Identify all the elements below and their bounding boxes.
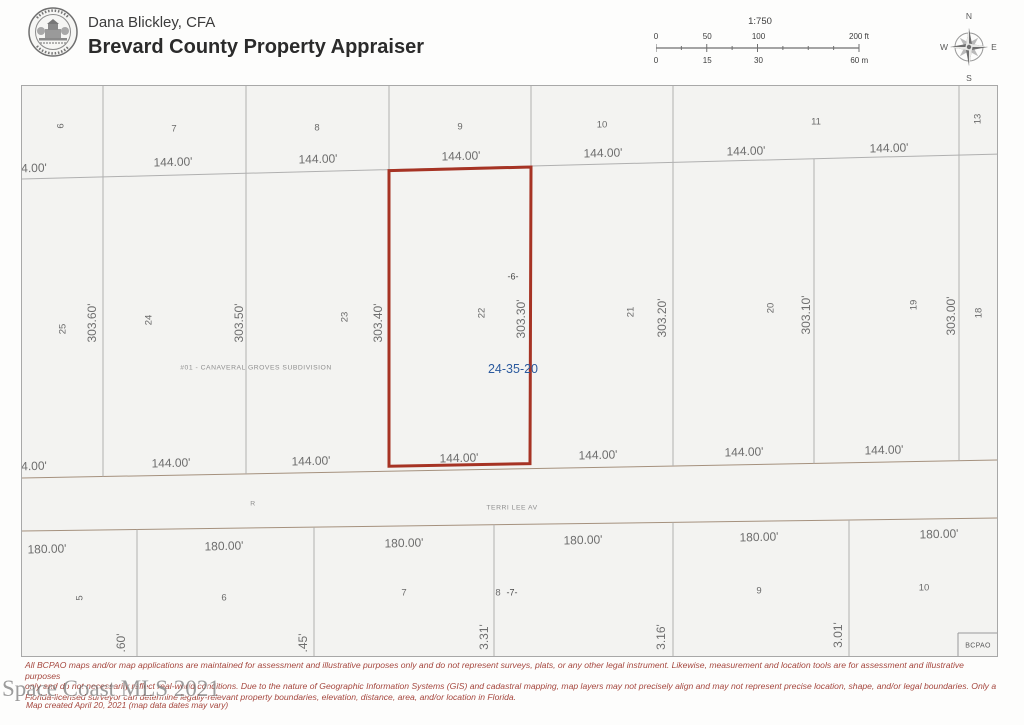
compass-south-label: S	[966, 73, 972, 83]
section-marker: -7-	[507, 589, 518, 598]
compass-east-label: E	[991, 42, 997, 52]
scale-feet-label: 200 ft	[849, 32, 869, 41]
dimension-label: 180.00'	[27, 542, 66, 555]
lot-number: 9	[756, 586, 761, 596]
lot-number: 24	[144, 315, 154, 326]
dimension-label: 144.00'	[864, 443, 903, 456]
dimension-label: 303.00'	[945, 297, 957, 336]
dimension-label: 144.00'	[153, 155, 192, 168]
scale-feet-label: 0	[654, 32, 658, 41]
dimension-label: 180.00'	[563, 533, 602, 546]
lot-number: 13	[973, 114, 983, 125]
road-marker: R	[250, 502, 255, 509]
lot-number: 19	[909, 300, 919, 311]
scale-meter-label: 0	[654, 56, 658, 65]
lot-number: 10	[919, 583, 930, 593]
dimension-label-clipped: 3.16'	[655, 624, 667, 650]
dimension-label: 144.00'	[726, 144, 765, 157]
mls-watermark: Space Coast MLS 2021	[2, 676, 220, 702]
section-marker: -6-	[508, 273, 519, 282]
dimension-label: 144.00'	[291, 454, 330, 467]
county-seal-icon	[28, 7, 78, 57]
dimension-label: 144.00'	[869, 141, 908, 154]
bcpao-credit-label: BCPAO	[965, 643, 991, 650]
parcel-map-canvas[interactable]: 4.00'144.00'144.00'144.00'144.00'144.00'…	[21, 85, 998, 657]
lot-number: 22	[477, 308, 487, 319]
scale-meter-label: 30	[754, 56, 763, 65]
dimension-label-clipped: 3.31'	[478, 624, 490, 650]
lot-number: 10	[597, 120, 608, 130]
scale-meter-labels: 0153060 m	[656, 56, 861, 66]
dimension-label: 144.00'	[151, 456, 190, 469]
dimension-label: 144.00'	[724, 445, 763, 458]
lot-number: 21	[626, 307, 636, 318]
parcel-id-label: 24-35-20	[488, 363, 538, 376]
scale-feet-label: 50	[703, 32, 712, 41]
lot-number: 9	[457, 122, 462, 132]
lot-number: 25	[58, 324, 68, 335]
lot-number: 7	[171, 124, 176, 134]
dimension-label: 180.00'	[919, 527, 958, 540]
lot-number: 23	[340, 312, 350, 323]
lot-number: 5	[75, 595, 85, 600]
lot-number: 8	[314, 123, 319, 133]
dimension-label: 144.00'	[578, 448, 617, 461]
dimension-label: 303.20'	[656, 299, 668, 338]
subdivision-label: #01 - CANAVERAL GROVES SUBDIVISION	[180, 366, 331, 373]
dimension-label-clipped: .45'	[297, 634, 309, 653]
compass-north-label: N	[966, 11, 972, 21]
dimension-label: 180.00'	[384, 536, 423, 549]
dimension-label-clipped: 3.01'	[832, 622, 844, 648]
scale-tick-marks	[656, 43, 861, 53]
dimension-label: 4.00'	[21, 162, 47, 175]
dimension-label: 303.10'	[800, 296, 812, 335]
scale-meter-label: 15	[703, 56, 712, 65]
dimension-label: 144.00'	[439, 451, 478, 464]
dimension-label: 144.00'	[583, 146, 622, 159]
dimension-label: 144.00'	[298, 152, 337, 165]
dimension-label: 144.00'	[441, 149, 480, 162]
dimension-label: 303.50'	[233, 304, 245, 343]
lot-number: 6	[56, 123, 66, 128]
scale-ratio: 1:750	[648, 16, 872, 27]
dimension-label: 180.00'	[204, 539, 243, 552]
lot-number: 7	[401, 588, 406, 598]
compass-west-label: W	[940, 42, 948, 52]
dimension-label: 180.00'	[739, 530, 778, 543]
dimension-label: 303.60'	[86, 304, 98, 343]
compass-rose: N E S W	[938, 8, 1000, 84]
lot-number: 18	[974, 308, 984, 319]
dimension-label: 303.40'	[372, 304, 384, 343]
lot-number: 20	[766, 303, 776, 314]
scale-meter-label: 60 m	[850, 56, 868, 65]
office-title: Brevard County Property Appraiser	[88, 36, 424, 59]
scale-bar: 1:750 050100200 ft 0153060 m	[648, 16, 872, 70]
lot-number: 11	[811, 117, 821, 127]
street-name-label: TERRI LEE AV	[486, 506, 537, 513]
appraiser-name: Dana Blickley, CFA	[88, 14, 215, 31]
dimension-label: 303.30'	[515, 300, 527, 339]
dimension-label-clipped: .60'	[115, 634, 127, 653]
highlighted-parcel-outline	[389, 167, 531, 466]
scale-feet-labels: 050100200 ft	[656, 32, 861, 42]
dimension-label: 4.00'	[21, 460, 47, 473]
lot-number: 8	[495, 588, 500, 598]
scale-feet-label: 100	[752, 32, 765, 41]
lot-number: 6	[221, 593, 226, 603]
